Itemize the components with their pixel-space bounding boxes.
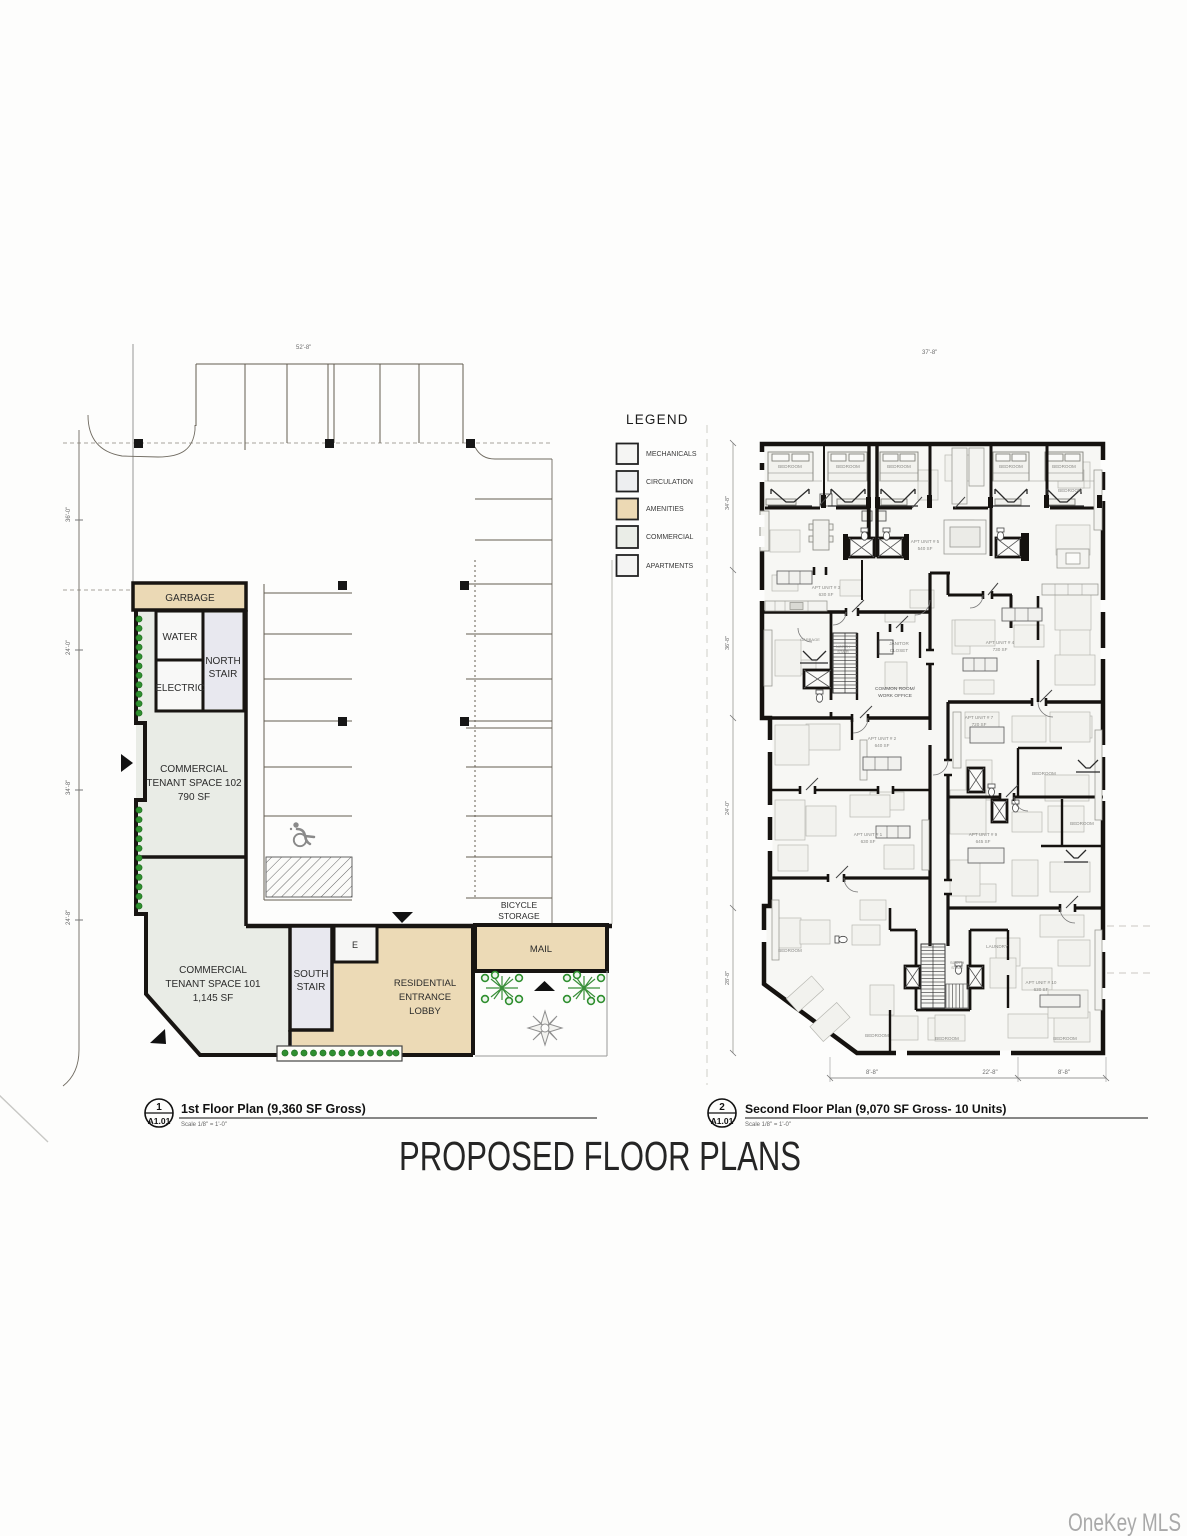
svg-text:AMENITIES: AMENITIES xyxy=(646,506,684,513)
svg-text:COMMERCIAL: COMMERCIAL xyxy=(646,534,694,541)
svg-text:COMMON ROOM/: COMMON ROOM/ xyxy=(875,686,916,692)
svg-text:630 SF: 630 SF xyxy=(819,592,834,597)
svg-text:STAIR: STAIR xyxy=(209,669,238,680)
svg-text:BICYCLE: BICYCLE xyxy=(501,900,538,910)
svg-text:1,145 SF: 1,145 SF xyxy=(193,993,234,1004)
svg-text:STAIR: STAIR xyxy=(837,649,849,654)
svg-text:LOBBY: LOBBY xyxy=(409,1006,441,1017)
svg-text:GARBAGE: GARBAGE xyxy=(165,593,215,604)
svg-text:BEDROOM: BEDROOM xyxy=(778,948,802,953)
svg-text:ELECTRIC: ELECTRIC xyxy=(155,683,204,694)
svg-text:22'-8": 22'-8" xyxy=(982,1070,997,1076)
svg-text:RESIDENTIAL: RESIDENTIAL xyxy=(394,978,456,989)
svg-text:34'-8": 34'-8" xyxy=(66,780,72,795)
svg-text:36'-0": 36'-0" xyxy=(66,507,72,522)
svg-text:A1.01: A1.01 xyxy=(148,1116,171,1126)
svg-text:APT UNIT # 4: APT UNIT # 4 xyxy=(986,640,1015,645)
svg-text:PROPOSED FLOOR PLANS: PROPOSED FLOOR PLANS xyxy=(399,1133,801,1179)
svg-text:540 SF: 540 SF xyxy=(918,546,933,551)
svg-text:BEDROOM: BEDROOM xyxy=(1052,464,1076,469)
svg-text:1st Floor Plan (9,360 SF Gross: 1st Floor Plan (9,360 SF Gross) xyxy=(181,1102,366,1116)
svg-text:1: 1 xyxy=(156,1102,162,1113)
svg-text:APT UNIT # 1: APT UNIT # 1 xyxy=(854,832,883,837)
svg-text:APT UNIT # 5: APT UNIT # 5 xyxy=(911,539,940,544)
svg-text:24'-8": 24'-8" xyxy=(66,910,72,925)
svg-text:LAUNDRY: LAUNDRY xyxy=(986,944,1008,949)
svg-text:A1.01: A1.01 xyxy=(711,1116,734,1126)
svg-text:37'-8": 37'-8" xyxy=(922,350,937,356)
svg-text:LEGEND: LEGEND xyxy=(626,412,689,427)
svg-text:28'-8": 28'-8" xyxy=(725,971,731,985)
svg-text:OneKey MLS: OneKey MLS xyxy=(1068,1509,1181,1536)
svg-text:MAIL: MAIL xyxy=(530,944,552,955)
svg-text:SOUTH: SOUTH xyxy=(294,969,329,980)
svg-text:2: 2 xyxy=(719,1102,725,1113)
svg-text:E: E xyxy=(352,940,358,950)
svg-text:APT UNIT # 3: APT UNIT # 3 xyxy=(812,585,841,590)
svg-text:BEDROOM: BEDROOM xyxy=(1053,1036,1077,1041)
svg-text:BEDROOM: BEDROOM xyxy=(935,1036,959,1041)
svg-text:Scale 1/8" = 1'-0": Scale 1/8" = 1'-0" xyxy=(745,1122,791,1128)
svg-text:GARBAGE: GARBAGE xyxy=(800,637,820,642)
svg-text:TENANT SPACE 101: TENANT SPACE 101 xyxy=(165,979,261,990)
svg-text:Scale 1/8" = 1'-0": Scale 1/8" = 1'-0" xyxy=(181,1122,227,1128)
svg-text:CIRCULATION: CIRCULATION xyxy=(646,479,693,486)
svg-text:STAIR: STAIR xyxy=(951,965,963,970)
svg-text:790 SF: 790 SF xyxy=(178,792,210,803)
svg-text:36'-8": 36'-8" xyxy=(725,636,731,650)
svg-text:BEDROOM: BEDROOM xyxy=(1058,488,1082,493)
svg-text:Second Floor Plan (9,070 SF Gr: Second Floor Plan (9,070 SF Gross- 10 Un… xyxy=(745,1102,1006,1116)
svg-text:TENANT SPACE 102: TENANT SPACE 102 xyxy=(146,778,242,789)
svg-text:645 SF: 645 SF xyxy=(976,839,991,844)
svg-text:630 SF: 630 SF xyxy=(1034,987,1049,992)
svg-text:8'-8": 8'-8" xyxy=(866,1070,878,1076)
svg-text:BEDROOM: BEDROOM xyxy=(999,464,1023,469)
svg-text:BEDROOM: BEDROOM xyxy=(887,464,911,469)
svg-text:STORAGE: STORAGE xyxy=(498,911,540,921)
svg-text:ENTRANCE: ENTRANCE xyxy=(399,992,451,1003)
svg-text:720 SF: 720 SF xyxy=(972,722,987,727)
svg-text:COMMERCIAL: COMMERCIAL xyxy=(179,965,247,976)
svg-text:BEDROOM: BEDROOM xyxy=(836,464,860,469)
svg-text:APT UNIT # 2: APT UNIT # 2 xyxy=(868,736,897,741)
svg-text:BEDROOM: BEDROOM xyxy=(1070,821,1094,826)
svg-text:630 SF: 630 SF xyxy=(861,839,876,844)
svg-text:730 SF: 730 SF xyxy=(993,647,1008,652)
svg-text:APT UNIT # 9: APT UNIT # 9 xyxy=(969,832,998,837)
svg-text:24'-0": 24'-0" xyxy=(66,640,72,655)
svg-text:8'-8": 8'-8" xyxy=(1058,1070,1070,1076)
svg-text:24'-0": 24'-0" xyxy=(725,801,731,815)
svg-text:COMMERCIAL: COMMERCIAL xyxy=(160,764,228,775)
svg-text:BEDROOM: BEDROOM xyxy=(1032,771,1056,776)
svg-text:52'-8": 52'-8" xyxy=(296,345,311,351)
svg-text:APARTMENTS: APARTMENTS xyxy=(646,563,694,570)
svg-text:NORTH: NORTH xyxy=(205,656,240,667)
svg-text:APT UNIT # 7: APT UNIT # 7 xyxy=(965,715,994,720)
svg-text:34'-8": 34'-8" xyxy=(725,496,731,510)
svg-text:BEDROOM: BEDROOM xyxy=(778,464,802,469)
svg-text:WATER: WATER xyxy=(163,632,198,643)
svg-text:STAIR: STAIR xyxy=(297,982,326,993)
svg-text:MECHANICALS: MECHANICALS xyxy=(646,451,697,458)
svg-text:JANITOR: JANITOR xyxy=(889,641,909,646)
svg-text:640 SF: 640 SF xyxy=(875,743,890,748)
svg-text:WORK OFFICE: WORK OFFICE xyxy=(878,693,912,699)
svg-text:APT UNIT # 10: APT UNIT # 10 xyxy=(1026,980,1057,985)
svg-text:BEDROOM: BEDROOM xyxy=(865,1033,889,1038)
